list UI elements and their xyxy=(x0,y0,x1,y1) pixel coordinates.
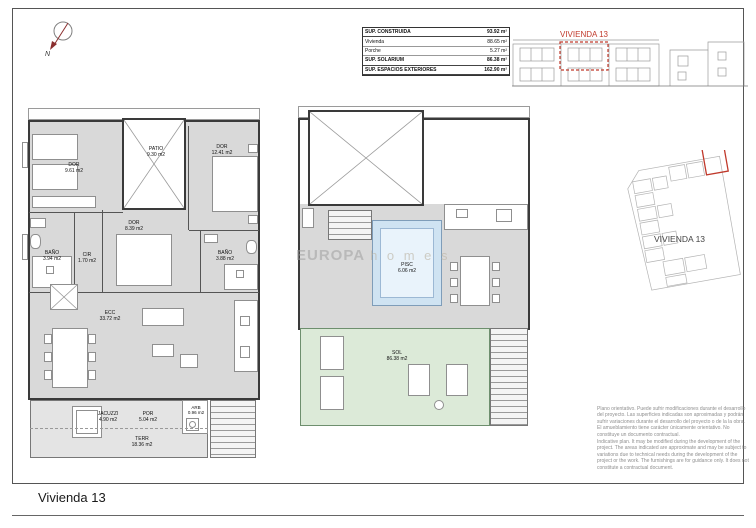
nightstand-icon xyxy=(248,144,258,153)
room-label-por: POR5.04 m2 xyxy=(139,411,157,423)
chair-icon xyxy=(492,294,500,303)
wall xyxy=(188,126,189,230)
highlight-unit-box xyxy=(560,42,608,70)
footer-rule xyxy=(12,515,744,516)
planter-icon xyxy=(22,234,28,260)
room-label-cir: CIR1.70 m2 xyxy=(78,252,96,264)
stairs-icon xyxy=(490,328,528,426)
chair-icon xyxy=(88,334,96,344)
chair-icon xyxy=(88,352,96,362)
row-value: 88.65 m² xyxy=(487,39,507,45)
disclaimer-en: Indicative plan. It may be modified duri… xyxy=(597,439,749,471)
stair-bulkhead-icon xyxy=(328,210,372,240)
floor-plan-ground: DOR9.61 m2 PATIO9.30 m2 DOR12.41 m2 DOR8… xyxy=(22,106,266,462)
shower-drain-icon xyxy=(236,270,244,278)
table-row: SUP. ESPACIOS EXTERIORES 162.90 m² xyxy=(363,66,509,75)
sink-icon xyxy=(204,234,218,243)
disclaimer-text: Plano orientativo. Puede sufrir modifica… xyxy=(597,406,749,472)
chair-icon xyxy=(44,370,52,380)
room-label-dor1: DOR9.61 m2 xyxy=(65,162,83,174)
sheet-title: Vivienda 13 xyxy=(38,490,106,505)
kitchen-sink-icon xyxy=(456,209,468,218)
shower-drain-icon xyxy=(46,266,54,274)
bed-icon xyxy=(212,156,258,212)
terrace-divider xyxy=(30,428,208,429)
disclaimer-es: Plano orientativo. Puede sufrir modifica… xyxy=(597,406,749,438)
surface-table: SUP. CONSTRUIDA 93.92 m² Vivienda 88.65 … xyxy=(362,27,510,76)
x-cross-icon xyxy=(124,120,184,208)
shaft-icon xyxy=(50,284,78,310)
room-label-bano2: BAÑO3.88 m2 xyxy=(216,250,234,262)
lounger-icon xyxy=(320,336,344,370)
sofa-icon xyxy=(142,308,184,326)
side-table-icon xyxy=(434,400,444,410)
chair-icon xyxy=(450,294,458,303)
kitchen-sink-icon xyxy=(240,316,250,326)
elevation-strip: VIVIENDA 13 xyxy=(512,20,748,94)
chair-icon xyxy=(450,278,458,287)
lounger-icon xyxy=(320,376,344,410)
room-label-sol: SOL86.38 m2 xyxy=(387,350,408,362)
room-label-bano1: BAÑO3.94 m2 xyxy=(43,250,61,262)
x-cross-icon xyxy=(310,112,422,204)
table-row: SUP. CONSTRUIDA 93.92 m² xyxy=(363,28,509,37)
chair-icon xyxy=(44,334,52,344)
site-plan-unit-label: VIVIENDA 13 xyxy=(654,234,705,244)
wall xyxy=(200,231,201,292)
lounger-icon xyxy=(446,364,468,396)
lounger-icon xyxy=(408,364,430,396)
chair-icon xyxy=(88,370,96,380)
bed-icon xyxy=(32,134,78,160)
compass-needle xyxy=(54,23,68,45)
north-indicator: N xyxy=(40,16,84,64)
row-value: 162.90 m² xyxy=(484,67,507,73)
highlight-unit-box xyxy=(702,150,728,175)
room-label-terr: TERR18.36 m2 xyxy=(132,436,153,448)
row-label: Porche xyxy=(365,48,381,54)
floor-plan-solarium: PISC6.06 m2 SOL86.38 m2 xyxy=(292,106,536,462)
planter-icon xyxy=(22,142,28,168)
jacuzzi-inner xyxy=(76,410,98,434)
table-row: Porche 5.27 m² xyxy=(363,47,509,56)
row-label: SUP. SOLARIUM xyxy=(365,57,404,63)
room-label-patio: PATIO9.30 m2 xyxy=(147,146,165,158)
room-label-arb: ARB0.96 m2 xyxy=(188,405,204,415)
barbecue-icon xyxy=(496,209,512,222)
hob-icon xyxy=(240,346,250,358)
patio-void xyxy=(122,118,186,210)
room-label-dor2: DOR12.41 m2 xyxy=(212,144,233,156)
bed-icon xyxy=(116,234,172,286)
toilet-icon xyxy=(246,240,257,254)
row-value: 86.38 m² xyxy=(487,57,507,63)
wall xyxy=(102,210,103,293)
wardrobe-icon xyxy=(32,196,96,208)
row-label: Vivienda xyxy=(365,39,384,45)
row-label: SUP. ESPACIOS EXTERIORES xyxy=(365,67,437,73)
site-plan: VIVIENDA 13 xyxy=(616,150,756,298)
chair-icon xyxy=(44,352,52,362)
row-label: SUP. CONSTRUIDA xyxy=(365,29,411,35)
chair-icon xyxy=(450,262,458,271)
sink-icon xyxy=(30,218,46,228)
wall xyxy=(29,212,123,213)
chair-icon xyxy=(492,262,500,271)
row-value: 5.27 m² xyxy=(490,48,507,54)
room-label-ecc: ECC33.72 m2 xyxy=(100,310,121,322)
row-value: 93.92 m² xyxy=(487,29,507,35)
room-label-jacuzzi: JACUZZI4.90 m2 xyxy=(98,411,119,423)
room-label-pisc: PISC6.06 m2 xyxy=(398,262,416,274)
dining-table-icon xyxy=(52,328,88,388)
dining-table-icon xyxy=(460,256,490,306)
wall xyxy=(74,213,75,293)
coffee-table-icon xyxy=(152,344,174,357)
nightstand-icon xyxy=(248,215,258,224)
room-label-dor3: DOR8.39 m2 xyxy=(125,220,143,232)
toilet-icon xyxy=(30,234,41,249)
north-label: N xyxy=(45,51,51,58)
table-row: Vivienda 88.65 m² xyxy=(363,37,509,46)
stairs-icon xyxy=(210,400,256,458)
x-cross-icon xyxy=(51,285,77,309)
kitchen-counter-icon xyxy=(234,300,258,372)
elevation-unit-label: VIVIENDA 13 xyxy=(560,30,609,39)
table-row: SUP. SOLARIUM 86.38 m² xyxy=(363,56,509,65)
patio-void xyxy=(308,110,424,206)
washing-machine-drum-icon xyxy=(189,421,196,428)
chair-icon xyxy=(492,278,500,287)
armchair-icon xyxy=(180,354,198,368)
planter-icon xyxy=(302,208,314,228)
